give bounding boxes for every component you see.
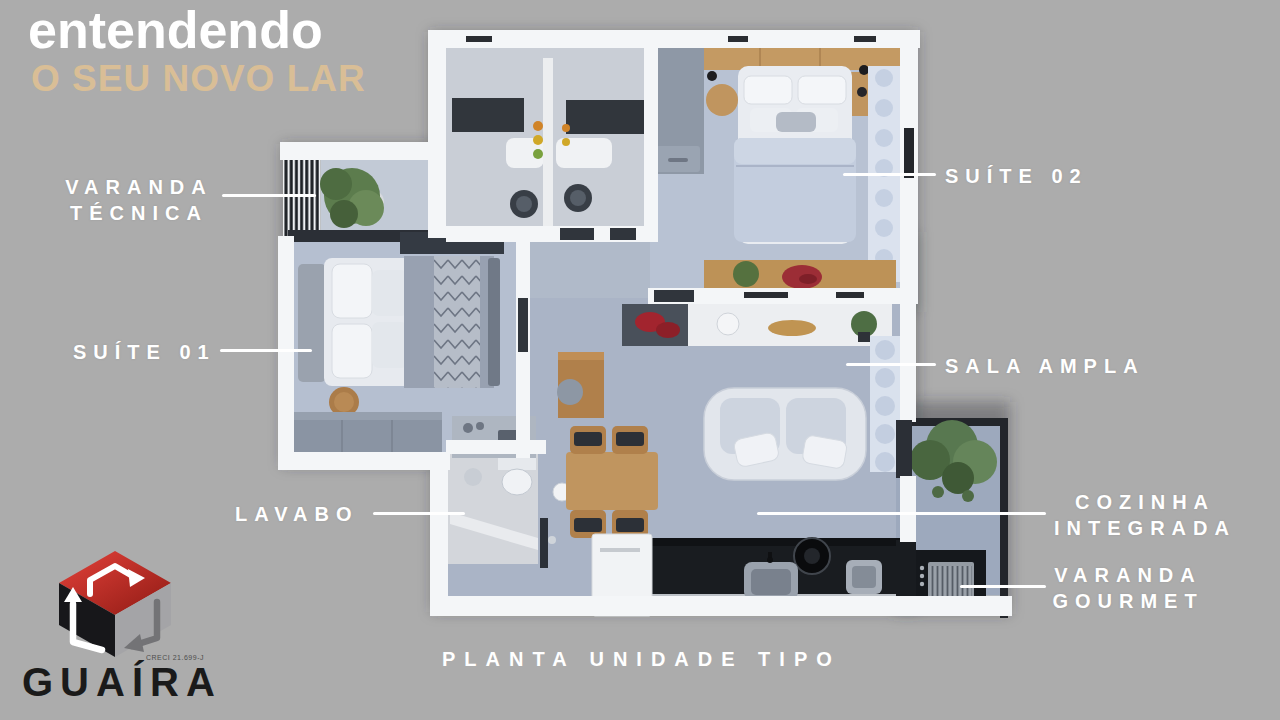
label-cozinha-integrada: COZINHA INTEGRADA — [1054, 489, 1236, 541]
label-text: VARANDA — [65, 174, 213, 200]
label-text: LAVABO — [235, 501, 358, 527]
plan-caption: PLANTA UNIDADE TIPO — [442, 648, 841, 671]
varanda-tecnica-leader-line — [222, 194, 316, 198]
label-text: TÉCNICA — [65, 200, 213, 226]
label-sala-ampla: SALA AMPLA — [945, 353, 1145, 379]
logo-cube-icon — [59, 551, 171, 657]
headline: entendendo — [28, 4, 323, 56]
label-lavabo: LAVABO — [235, 501, 358, 527]
subheadline: O SEU NOVO LAR — [31, 60, 366, 97]
label-varanda-gourmet: VARANDA GOURMET — [1052, 562, 1203, 614]
cozinha-integrada-leader-line — [757, 512, 1046, 516]
label-text: VARANDA — [1052, 562, 1203, 588]
label-suite-01: SUÍTE 01 — [73, 339, 216, 365]
suite-01-leader-line — [220, 349, 312, 353]
varanda-gourmet-leader-line — [960, 585, 1046, 589]
logo-name: GUAÍRA — [22, 660, 222, 705]
label-text: GOURMET — [1052, 588, 1203, 614]
label-suite-02: SUÍTE 02 — [945, 163, 1088, 189]
label-text: INTEGRADA — [1054, 515, 1236, 541]
room-suite-01 — [292, 232, 536, 458]
label-varanda-tecnica: VARANDA TÉCNICA — [65, 174, 213, 226]
label-text: SUÍTE 02 — [945, 163, 1088, 189]
suite-02-leader-line — [843, 173, 936, 177]
marketing-poster: entendendo O SEU NOVO LAR VARANDA TÉCNIC… — [0, 0, 1280, 720]
sala-ampla-leader-line — [846, 363, 936, 367]
label-text: COZINHA — [1054, 489, 1236, 515]
label-text: SALA AMPLA — [945, 353, 1145, 379]
lavabo-leader-line — [373, 512, 465, 516]
label-text: SUÍTE 01 — [73, 339, 216, 365]
